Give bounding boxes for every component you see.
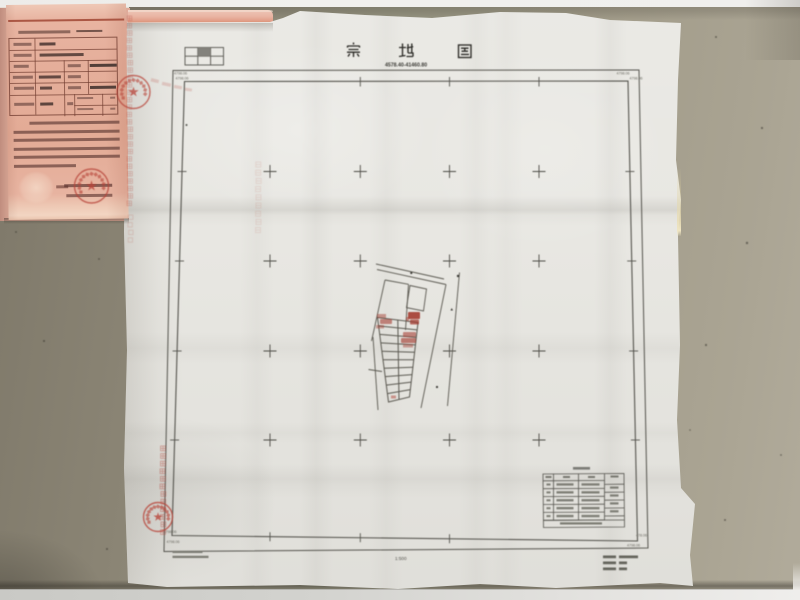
svg-text:4798.06: 4798.06 <box>630 77 643 81</box>
svg-text:4798.06: 4798.06 <box>167 540 180 544</box>
svg-text:1:500: 1:500 <box>395 556 407 561</box>
svg-text:4798.06: 4798.06 <box>174 72 187 76</box>
svg-text:4798.06: 4798.06 <box>617 72 630 76</box>
svg-text:4578.40-41460.80: 4578.40-41460.80 <box>385 63 427 69</box>
svg-text:4798.06: 4798.06 <box>627 544 640 548</box>
svg-text:4798.06: 4798.06 <box>176 77 189 81</box>
svg-text:478.06: 478.06 <box>636 534 647 538</box>
